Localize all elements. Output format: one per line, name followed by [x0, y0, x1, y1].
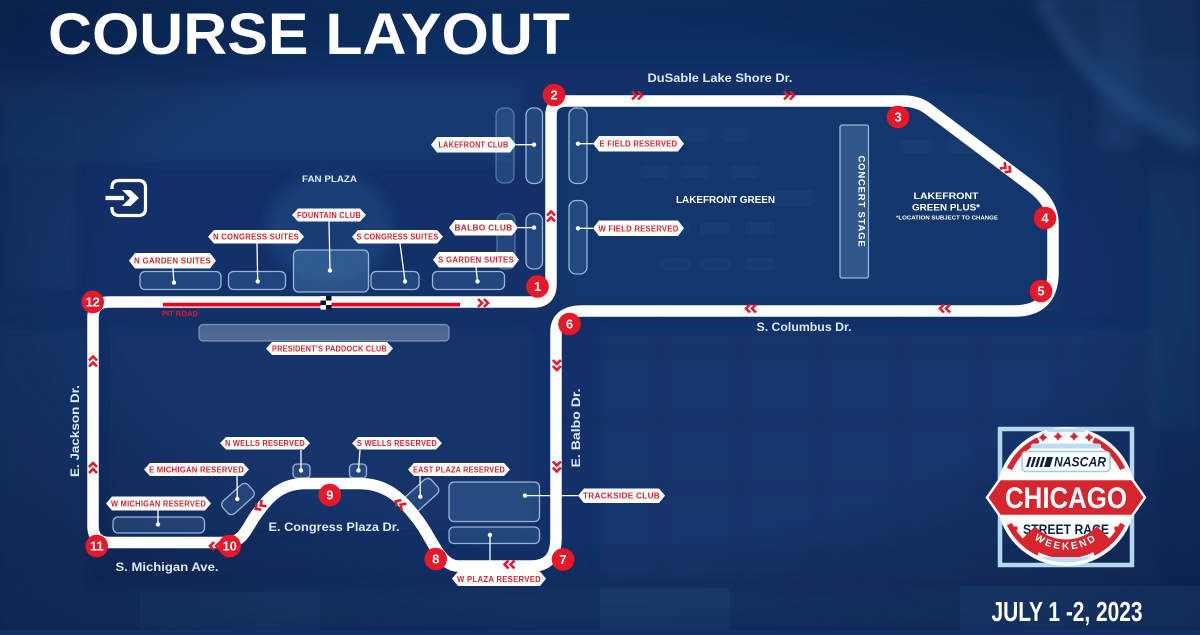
- svg-text:E FIELD RESERVED: E FIELD RESERVED: [600, 140, 678, 149]
- svg-text:12: 12: [85, 295, 99, 310]
- svg-text:PRESIDENT'S PADDOCK CLUB: PRESIDENT'S PADDOCK CLUB: [272, 345, 387, 354]
- svg-text:5: 5: [1037, 284, 1044, 299]
- svg-text:N WELLS RESERVED: N WELLS RESERVED: [225, 439, 305, 448]
- svg-text:S. Columbus Dr.: S. Columbus Dr.: [757, 320, 852, 334]
- svg-text:NASCAR: NASCAR: [1054, 454, 1107, 470]
- svg-text:BALBO CLUB: BALBO CLUB: [455, 224, 513, 233]
- svg-text:PIT ROAD: PIT ROAD: [162, 309, 199, 318]
- svg-text:11: 11: [90, 539, 104, 554]
- svg-text:COURSE LAYOUT: COURSE LAYOUT: [48, 2, 570, 67]
- svg-text:S CONGRESS SUITES: S CONGRESS SUITES: [357, 233, 439, 242]
- svg-text:LAKEFRONT: LAKEFRONT: [914, 191, 979, 202]
- svg-text:S GARDEN SUITES: S GARDEN SUITES: [438, 256, 514, 265]
- svg-text:TRACKSIDE CLUB: TRACKSIDE CLUB: [583, 492, 660, 501]
- svg-text:S WELLS RESERVED: S WELLS RESERVED: [357, 439, 437, 448]
- svg-text:CONCERT STAGE: CONCERT STAGE: [856, 155, 867, 247]
- svg-text:10: 10: [222, 539, 236, 554]
- svg-text:3: 3: [894, 110, 901, 125]
- svg-text:8: 8: [432, 552, 439, 567]
- svg-text:S. Michigan Ave.: S. Michigan Ave.: [116, 560, 219, 574]
- svg-text:W PLAZA RESERVED: W PLAZA RESERVED: [457, 575, 541, 584]
- svg-text:DuSable Lake Shore Dr.: DuSable Lake Shore Dr.: [648, 71, 793, 85]
- svg-text:W MICHIGAN RESERVED: W MICHIGAN RESERVED: [111, 500, 206, 509]
- svg-text:E MICHIGAN RESERVED: E MICHIGAN RESERVED: [149, 466, 244, 475]
- svg-text:LAKEFRONT GREEN: LAKEFRONT GREEN: [676, 194, 775, 206]
- svg-text:1: 1: [534, 279, 541, 294]
- svg-text:FOUNTAIN CLUB: FOUNTAIN CLUB: [297, 211, 361, 220]
- svg-text:N GARDEN SUITES: N GARDEN SUITES: [134, 257, 211, 266]
- svg-text:9: 9: [326, 488, 333, 503]
- svg-text:FAN PLAZA: FAN PLAZA: [302, 174, 357, 185]
- svg-text:7: 7: [559, 552, 566, 567]
- svg-text:N CONGRESS SUITES: N CONGRESS SUITES: [213, 233, 299, 242]
- svg-text:GREEN PLUS*: GREEN PLUS*: [912, 203, 980, 214]
- svg-text:E. Jackson Dr.: E. Jackson Dr.: [68, 385, 82, 477]
- svg-text:CHICAGO: CHICAGO: [1005, 482, 1127, 515]
- svg-text:2: 2: [550, 88, 557, 103]
- svg-text:W FIELD RESERVED: W FIELD RESERVED: [599, 224, 679, 233]
- svg-text:4: 4: [1041, 211, 1049, 226]
- svg-text:E. Congress Plaza Dr.: E. Congress Plaza Dr.: [269, 520, 400, 534]
- svg-text:EAST PLAZA RESERVED: EAST PLAZA RESERVED: [413, 466, 505, 475]
- svg-text:JULY 1 -2, 2023: JULY 1 -2, 2023: [992, 596, 1143, 627]
- svg-text:6: 6: [566, 317, 573, 332]
- svg-text:LAKEFRONT CLUB: LAKEFRONT CLUB: [439, 141, 509, 150]
- svg-text:E. Balbo Dr.: E. Balbo Dr.: [569, 389, 583, 468]
- svg-text:*LOCATION SUBJECT TO CHANGE: *LOCATION SUBJECT TO CHANGE: [896, 216, 998, 222]
